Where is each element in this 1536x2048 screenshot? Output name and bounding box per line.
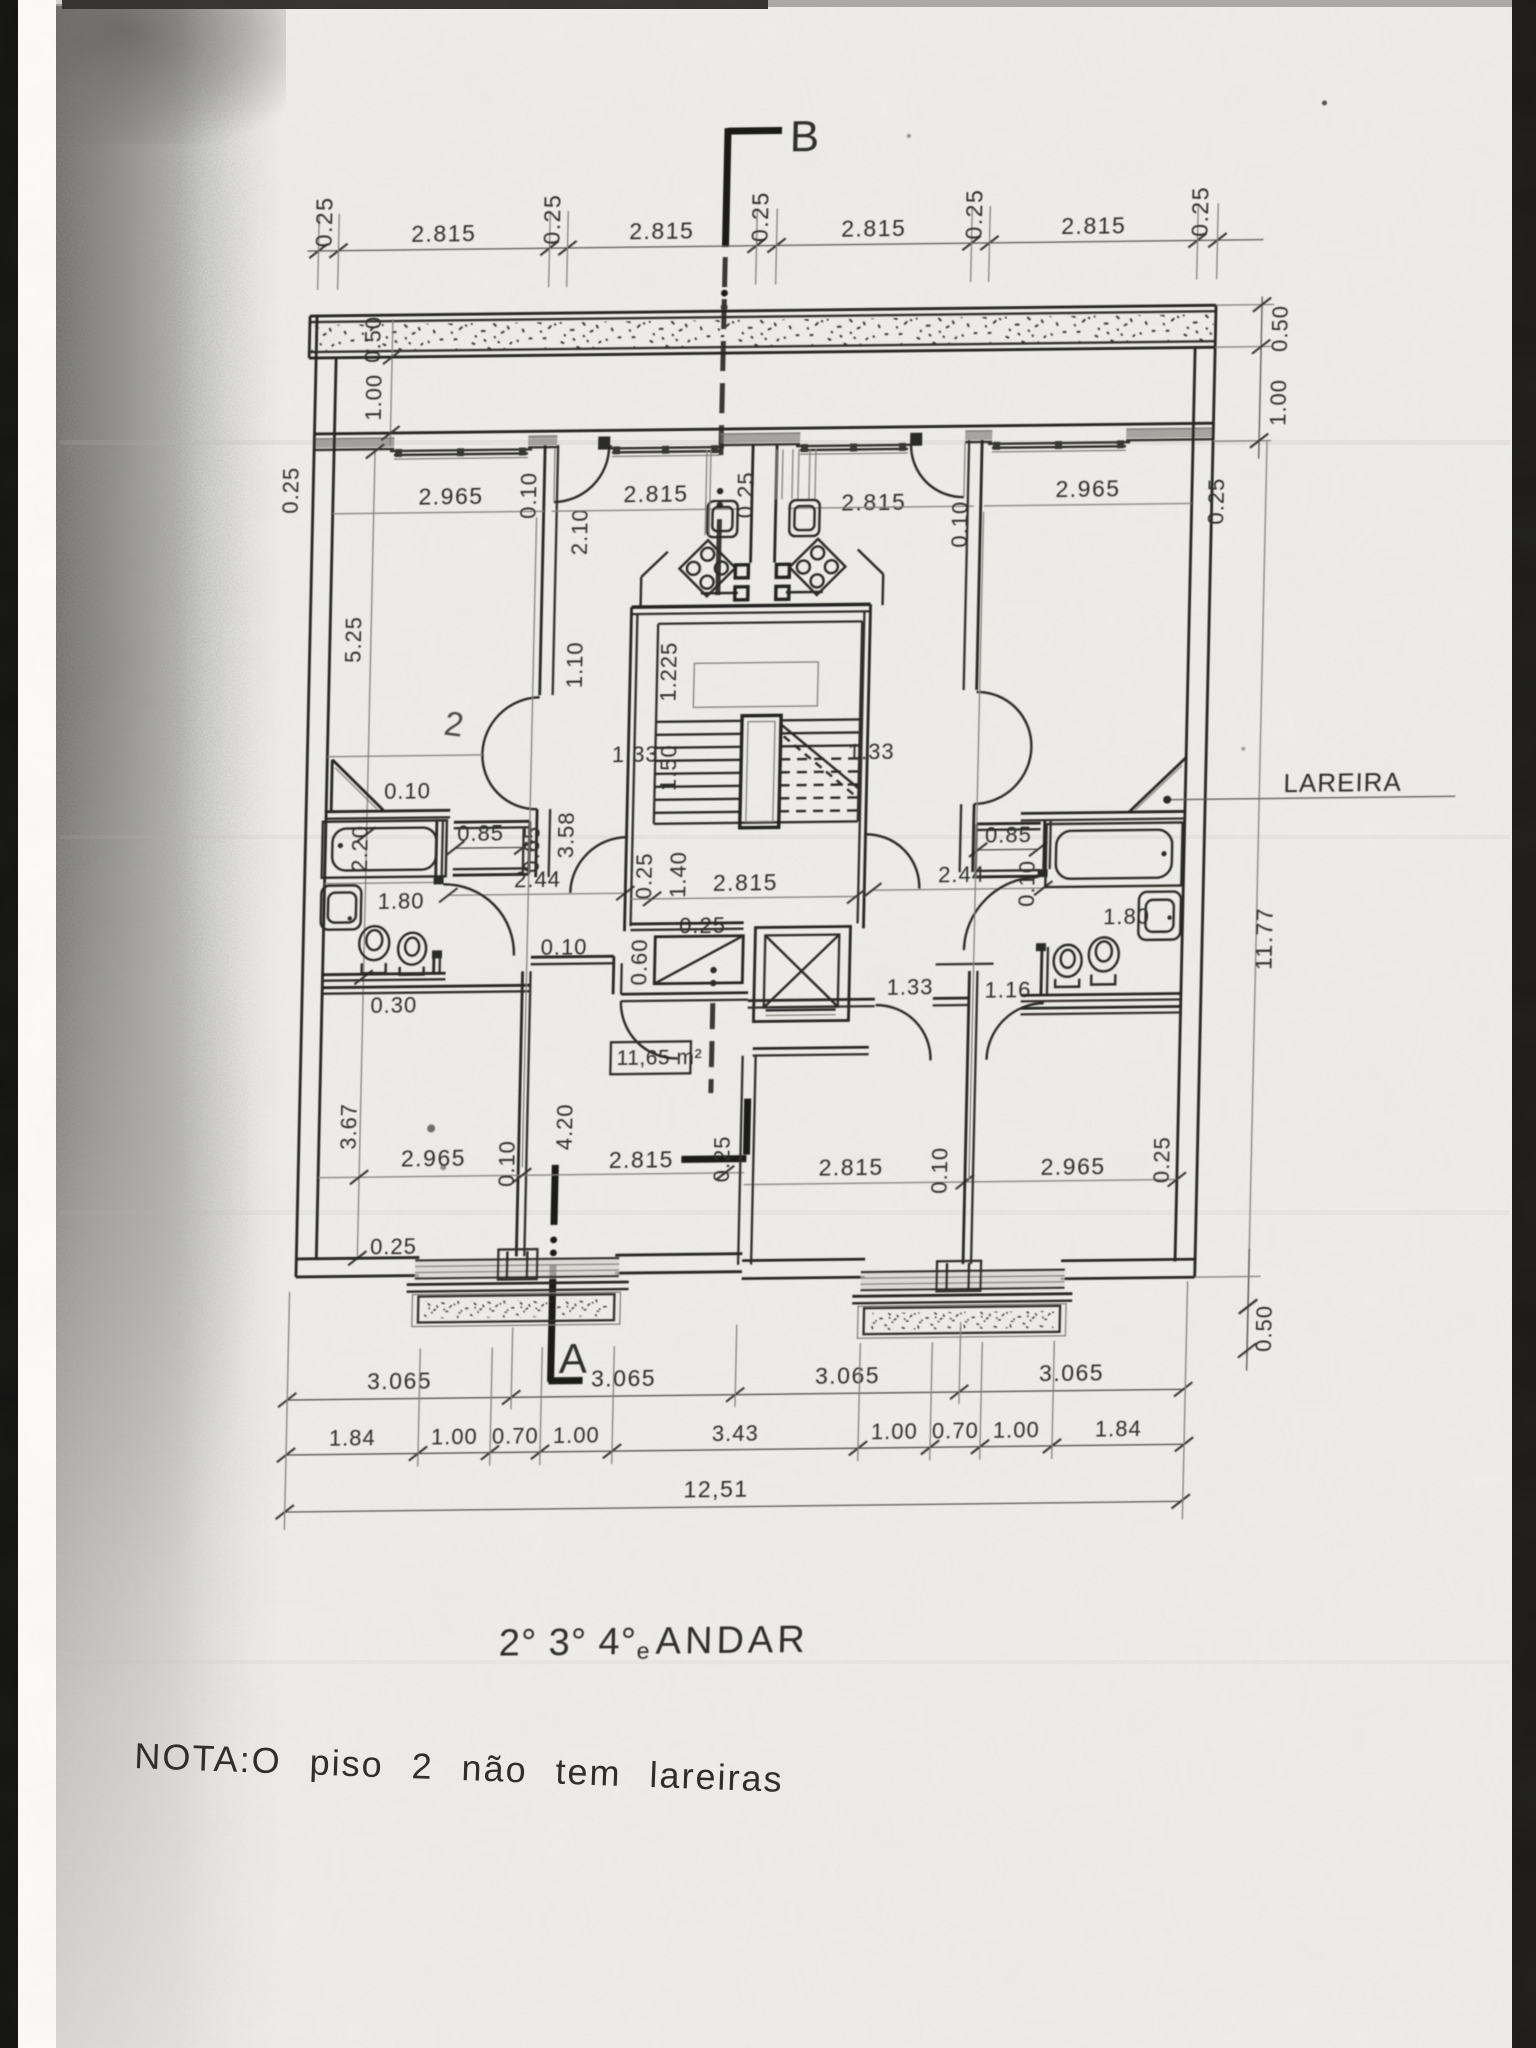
svg-text:2.965: 2.965 <box>1040 1153 1106 1180</box>
svg-text:0.50: 0.50 <box>360 316 386 363</box>
svg-text:2.815: 2.815 <box>818 1154 884 1181</box>
svg-text:2.815: 2.815 <box>411 220 477 247</box>
svg-text:2.10: 2.10 <box>567 508 593 555</box>
svg-text:0.70: 0.70 <box>932 1418 979 1444</box>
svg-text:3.43: 3.43 <box>712 1420 759 1446</box>
svg-text:1.80: 1.80 <box>377 889 424 915</box>
svg-text:11.77: 11.77 <box>1250 907 1277 971</box>
svg-text:0.25: 0.25 <box>732 471 758 518</box>
svg-text:0.10: 0.10 <box>947 501 973 548</box>
svg-text:2.815: 2.815 <box>1061 212 1127 239</box>
svg-text:LAREIRA: LAREIRA <box>1283 767 1402 798</box>
svg-text:0.25: 0.25 <box>370 1234 417 1260</box>
svg-text:1.225: 1.225 <box>655 642 681 702</box>
svg-text:2.815: 2.815 <box>629 217 695 244</box>
svg-text:0.50: 0.50 <box>1267 305 1293 352</box>
svg-text:0.85: 0.85 <box>985 822 1032 848</box>
svg-text:0.10: 0.10 <box>927 1147 953 1194</box>
svg-text:1.00: 1.00 <box>871 1418 918 1444</box>
svg-text:0.25: 0.25 <box>679 913 726 939</box>
svg-text:1.00: 1.00 <box>361 374 387 421</box>
svg-text:4.20: 4.20 <box>552 1103 578 1150</box>
svg-text:0.25: 0.25 <box>631 852 657 899</box>
svg-text:2.44: 2.44 <box>514 867 561 893</box>
svg-text:0.25: 0.25 <box>747 191 774 242</box>
svg-text:3.065: 3.065 <box>1039 1359 1105 1386</box>
svg-text:0.10: 0.10 <box>494 1140 520 1187</box>
svg-text:1.84: 1.84 <box>1095 1416 1142 1442</box>
svg-text:0.25: 0.25 <box>1187 186 1214 237</box>
svg-text:2.815: 2.815 <box>713 869 779 896</box>
svg-text:0.25: 0.25 <box>1149 1136 1175 1183</box>
svg-text:0.85: 0.85 <box>457 821 504 847</box>
svg-text:1.33: 1.33 <box>848 739 895 765</box>
svg-text:A: A <box>559 1334 588 1381</box>
svg-text:0.25: 0.25 <box>961 189 988 240</box>
svg-text:1.80: 1.80 <box>1103 904 1150 930</box>
svg-text:0.65: 0.65 <box>519 826 545 873</box>
svg-text:0.25: 0.25 <box>311 196 338 247</box>
svg-text:1.84: 1.84 <box>329 1425 376 1451</box>
svg-text:3.67: 3.67 <box>336 1103 362 1150</box>
svg-text:0.70: 0.70 <box>492 1423 539 1449</box>
svg-text:1.16: 1.16 <box>984 977 1031 1003</box>
svg-text:3.065: 3.065 <box>591 1365 657 1392</box>
svg-text:2.44: 2.44 <box>938 862 985 888</box>
svg-text:1.00: 1.00 <box>553 1422 600 1448</box>
svg-text:2.20: 2.20 <box>347 825 373 872</box>
svg-text:0.25: 0.25 <box>1203 478 1229 525</box>
svg-text:0.25: 0.25 <box>539 194 566 245</box>
svg-text:2.815: 2.815 <box>623 480 689 507</box>
svg-text:0.30: 0.30 <box>370 993 417 1019</box>
svg-text:0.25: 0.25 <box>278 467 304 514</box>
svg-text:5.25: 5.25 <box>340 616 366 663</box>
svg-text:1.10: 1.10 <box>562 641 588 688</box>
svg-text:1.00: 1.00 <box>1265 379 1291 426</box>
svg-text:1.33: 1.33 <box>886 974 933 1000</box>
svg-text:0.10: 0.10 <box>516 472 542 519</box>
svg-text:2.815: 2.815 <box>609 1146 675 1173</box>
svg-text:1.00: 1.00 <box>993 1417 1040 1443</box>
svg-text:12,51: 12,51 <box>683 1476 749 1503</box>
svg-text:1.50: 1.50 <box>656 744 682 791</box>
svg-text:1.00: 1.00 <box>431 1424 478 1450</box>
svg-text:0.10: 0.10 <box>1014 860 1040 907</box>
svg-text:2.815: 2.815 <box>841 215 907 242</box>
svg-text:0.10: 0.10 <box>384 779 431 805</box>
svg-text:2.965: 2.965 <box>1055 475 1121 502</box>
svg-text:2.815: 2.815 <box>841 489 907 516</box>
svg-text:1.40: 1.40 <box>665 851 691 898</box>
svg-text:2.965: 2.965 <box>401 1145 467 1172</box>
svg-text:3.065: 3.065 <box>815 1362 881 1389</box>
svg-text:0.60: 0.60 <box>626 938 652 985</box>
svg-text:2.965: 2.965 <box>418 483 484 510</box>
svg-text:B: B <box>789 112 821 161</box>
svg-text:11,65 m²: 11,65 m² <box>616 1046 702 1070</box>
svg-text:3.58: 3.58 <box>553 811 579 858</box>
svg-text:0.25: 0.25 <box>709 1135 735 1182</box>
svg-text:0.50: 0.50 <box>1251 1305 1277 1352</box>
svg-text:3.065: 3.065 <box>367 1367 433 1394</box>
